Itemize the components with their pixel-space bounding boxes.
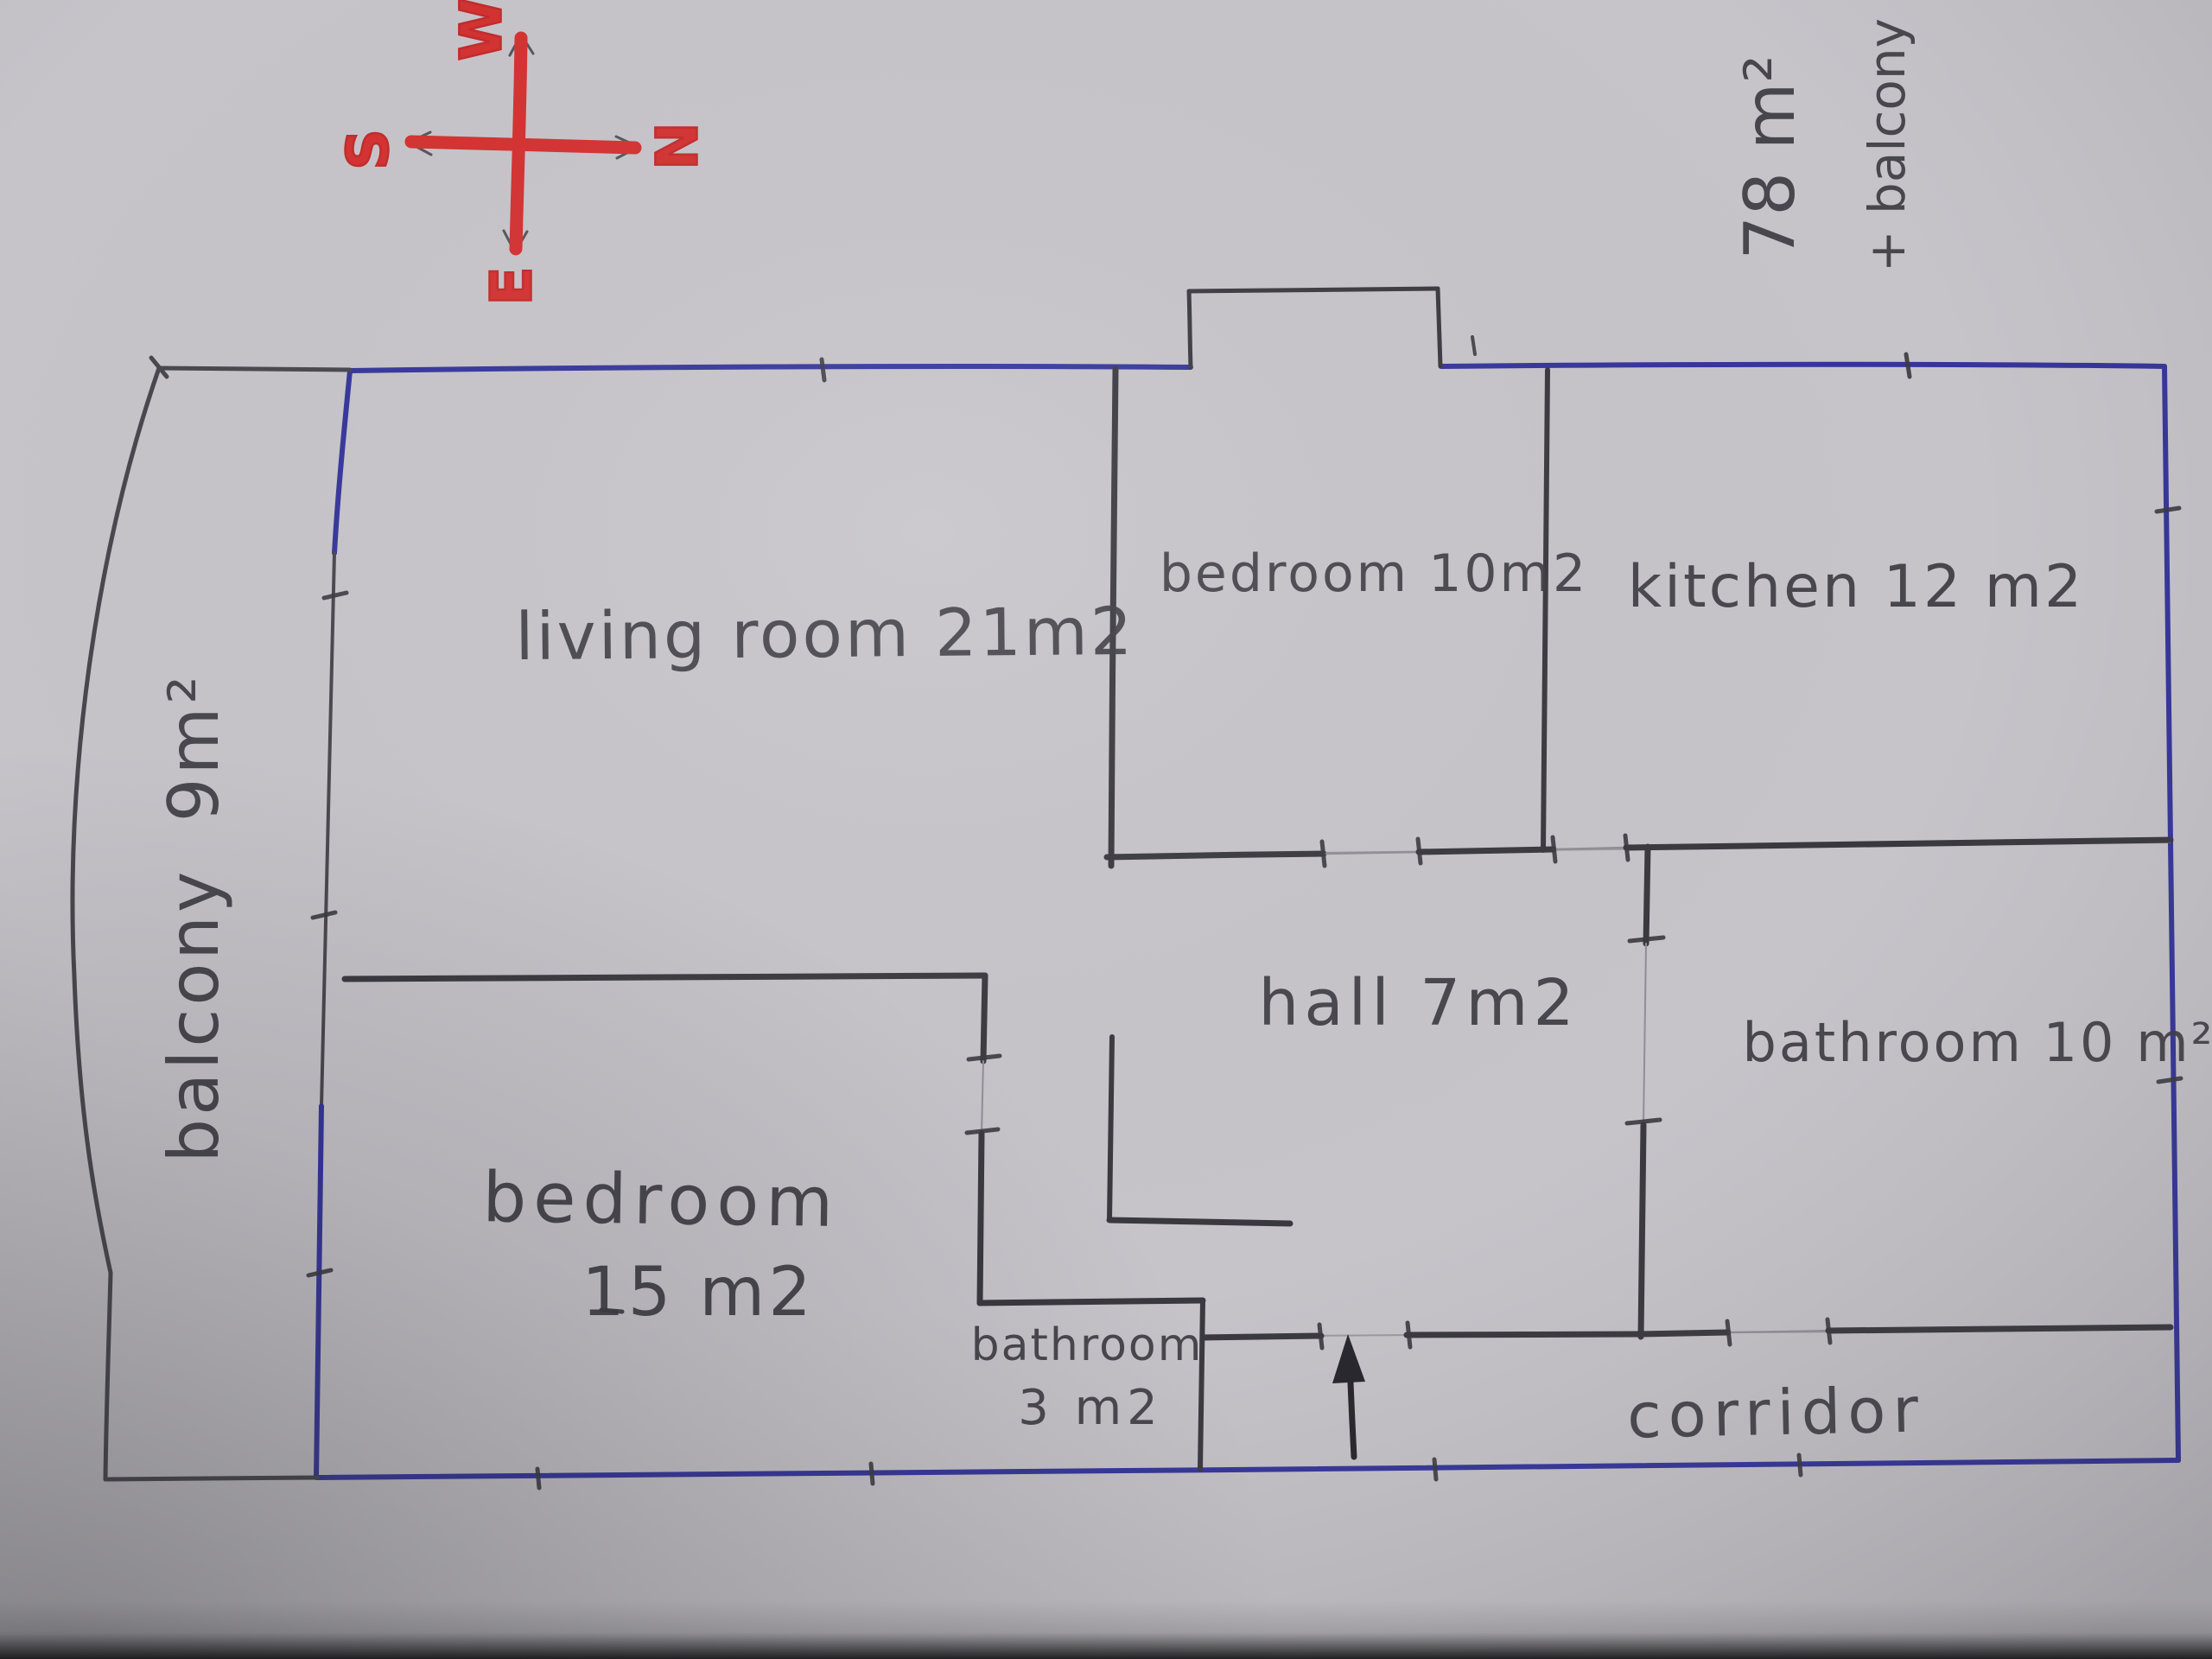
- table-edge-shadow: [0, 1600, 2212, 1659]
- floor-plan-sketch: W S N E 78 m² + balcony living room 21m2…: [0, 0, 2212, 1659]
- corner-shadow: [0, 0, 2212, 1659]
